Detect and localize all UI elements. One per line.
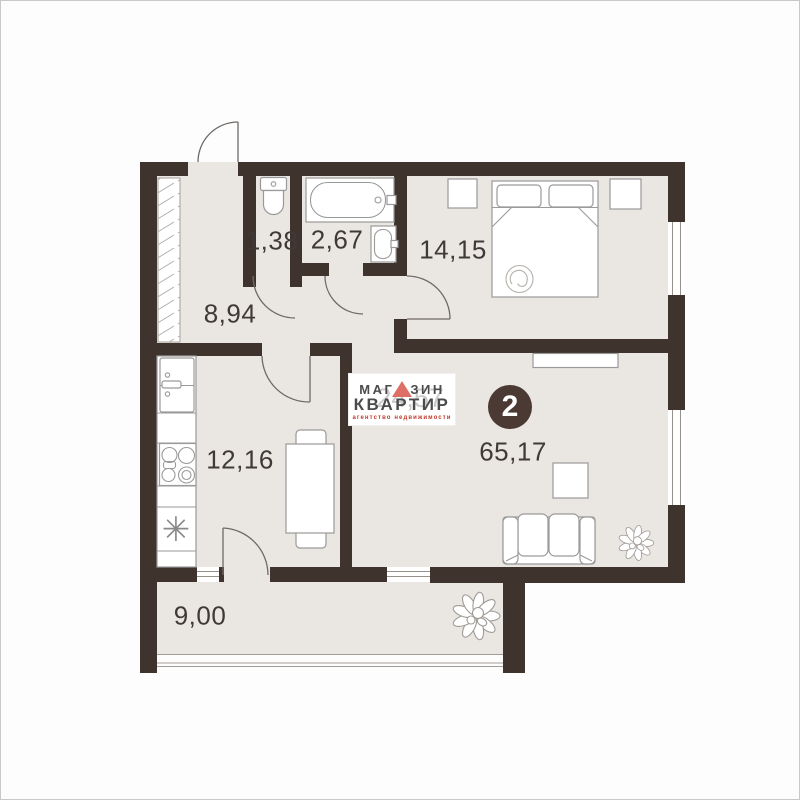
sofa-cushion-right [549, 514, 579, 556]
area-label-bathroom: 2,67 [311, 225, 364, 256]
bedroom-window [668, 222, 685, 295]
kitchen-sink-icon: ✳ [162, 510, 191, 550]
logo-line1-left: МАГ [359, 383, 394, 396]
fridge [160, 358, 194, 412]
nightstand-left [448, 179, 477, 208]
toilet [261, 178, 287, 215]
living-room-window [668, 410, 685, 505]
logo-triangle-icon [392, 381, 412, 397]
logo-line2: КВАРТИР [354, 396, 451, 413]
stove [160, 444, 197, 486]
bed [492, 181, 598, 297]
area-label-kitchen: 12,16 [206, 445, 274, 476]
sofa-armrest-right [580, 517, 595, 564]
pillow-left [497, 185, 541, 207]
living-balcony-window [387, 567, 430, 582]
logo-line1: МАГ ЗИН [359, 381, 444, 396]
dining-table [286, 430, 334, 548]
sofa [503, 514, 595, 564]
area-label-total: 65,17 [479, 437, 547, 468]
entry-door [198, 122, 238, 162]
sofa-cushion-left [518, 514, 548, 556]
agency-logo: 24,57 МАГ ЗИН КВАРТИР агентство недвижим… [349, 374, 455, 425]
logo-tagline: агентство недвижимости [352, 415, 451, 421]
area-label-bedroom: 14,15 [419, 235, 487, 266]
tv-stand [533, 354, 618, 368]
pillow-right [549, 185, 593, 207]
area-label-wc: 1,38 [246, 226, 299, 257]
nightstand-right [610, 179, 641, 209]
bathtub [306, 178, 396, 222]
kitchen-balcony-window [197, 567, 219, 582]
balcony-glazing [157, 655, 503, 667]
bathroom-sink [371, 226, 398, 262]
logo-line1-right: ЗИН [410, 383, 444, 396]
coffee-table [553, 463, 588, 498]
area-label-hallway: 8,94 [204, 299, 257, 330]
rooms-count-badge: 2 [488, 385, 532, 429]
sofa-armrest-left [503, 517, 518, 564]
wardrobe [158, 178, 180, 342]
floor-plan-image: ✳ 1,38 2,67 14,15 8,94 12,16 65,17 9,00 … [0, 0, 800, 800]
area-label-balcony: 9,00 [174, 601, 227, 632]
